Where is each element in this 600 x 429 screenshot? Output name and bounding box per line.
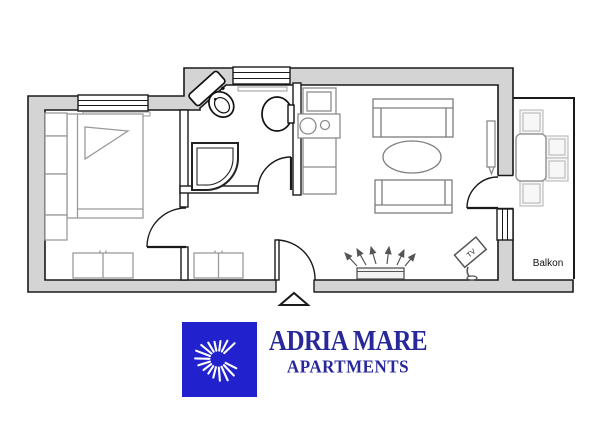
bathroom-door (258, 157, 291, 190)
bedroom-partition-stub (181, 247, 188, 280)
bedroom-cabinet (73, 251, 133, 279)
brand-title: ADRIA MARE (269, 327, 427, 356)
wall-radiator (487, 121, 495, 174)
bedroom-door (147, 208, 186, 247)
entrance-opening (276, 279, 314, 295)
wardrobe-column (45, 113, 67, 240)
stove (298, 114, 340, 138)
sofa-top (373, 99, 453, 137)
bedroom-window (78, 95, 148, 111)
sun-swirl-icon (182, 322, 257, 397)
apartment-floorplan-image: TV Balkon ADRIA MARE APARTMENTS (0, 0, 600, 429)
coffee-table (383, 141, 441, 173)
bathroom-window (233, 67, 290, 84)
hall-cabinet (194, 251, 243, 279)
balcony-door (467, 177, 498, 208)
heat-arrows-icon (345, 247, 415, 266)
brand-subtitle: APARTMENTS (287, 356, 409, 378)
bathroom-window-sill (238, 87, 287, 91)
kitchen-counter (303, 88, 336, 194)
tv-stand: TV (454, 237, 486, 280)
entrance-door (275, 240, 315, 280)
kitchen-wall (293, 83, 301, 195)
shower (192, 143, 238, 190)
balcony-table (516, 134, 546, 181)
balcony-door-opening (497, 175, 514, 209)
brand-logo (182, 322, 257, 397)
balcony-label: Balkon (533, 258, 564, 269)
double-bed (67, 114, 143, 218)
sink (262, 97, 294, 131)
radiator (345, 247, 415, 279)
floorplan-drawing: TV Balkon (0, 0, 600, 312)
sofa-bottom (375, 180, 452, 213)
living-room-window (497, 209, 513, 240)
brand-text-block: ADRIA MARE APARTMENTS (268, 329, 428, 377)
entrance-arrow-icon (280, 293, 308, 305)
